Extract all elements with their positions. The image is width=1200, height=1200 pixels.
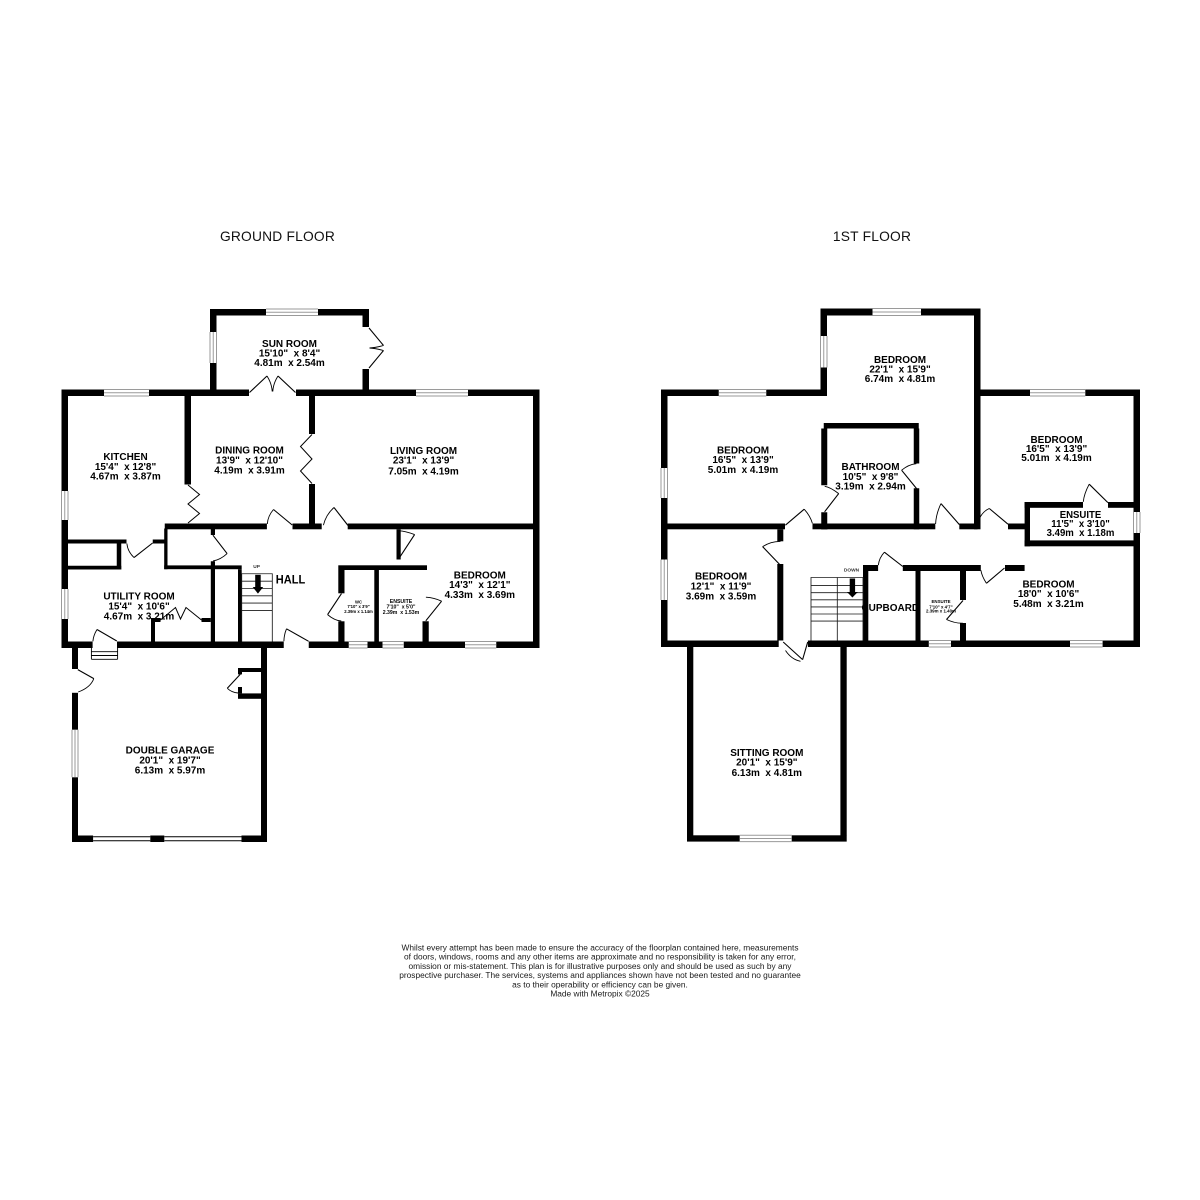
svg-text:4.67m x 3.21m: 4.67m x 3.21m (104, 611, 174, 622)
svg-text:6.13m x 4.81m: 6.13m x 4.81m (732, 768, 802, 779)
svg-text:2.39m x 1.53m: 2.39m x 1.53m (383, 610, 420, 616)
svg-text:5.01m x 4.19m: 5.01m x 4.19m (708, 465, 778, 476)
svg-text:2.39m x 1.40m: 2.39m x 1.40m (926, 608, 956, 613)
svg-text:4.81m x 2.54m: 4.81m x 2.54m (254, 358, 324, 369)
svg-text:5.48m x 3.21m: 5.48m x 3.21m (1013, 599, 1083, 610)
svg-text:3.19m x 2.94m: 3.19m x 2.94m (835, 481, 905, 492)
svg-text:1ST FLOOR: 1ST FLOOR (833, 229, 911, 244)
svg-text:6.13m x 5.97m: 6.13m x 5.97m (135, 766, 205, 777)
svg-text:CUPBOARD: CUPBOARD (861, 603, 919, 614)
svg-text:UP: UP (253, 564, 260, 570)
svg-text:3.49m x 1.18m: 3.49m x 1.18m (1047, 528, 1115, 539)
svg-text:5.01m x 4.19m: 5.01m x 4.19m (1021, 453, 1091, 464)
svg-text:7.05m x 4.19m: 7.05m x 4.19m (388, 466, 458, 477)
svg-text:4.33m x 3.69m: 4.33m x 3.69m (445, 590, 515, 601)
svg-text:DOWN: DOWN (844, 568, 860, 574)
svg-text:4.67m x 3.87m: 4.67m x 3.87m (90, 472, 160, 483)
svg-text:3.69m x 3.59m: 3.69m x 3.59m (686, 591, 756, 602)
svg-text:Made with Metropix ©2025: Made with Metropix ©2025 (550, 989, 650, 999)
svg-text:GROUND FLOOR: GROUND FLOOR (220, 229, 335, 244)
svg-text:HALL: HALL (276, 575, 306, 587)
svg-text:23'1" x 13'9": 23'1" x 13'9" (393, 455, 455, 466)
svg-text:6.74m x 4.81m: 6.74m x 4.81m (865, 374, 935, 385)
svg-text:2.39m x 1.14m: 2.39m x 1.14m (344, 609, 373, 614)
svg-text:4.19m x 3.91m: 4.19m x 3.91m (214, 466, 284, 477)
